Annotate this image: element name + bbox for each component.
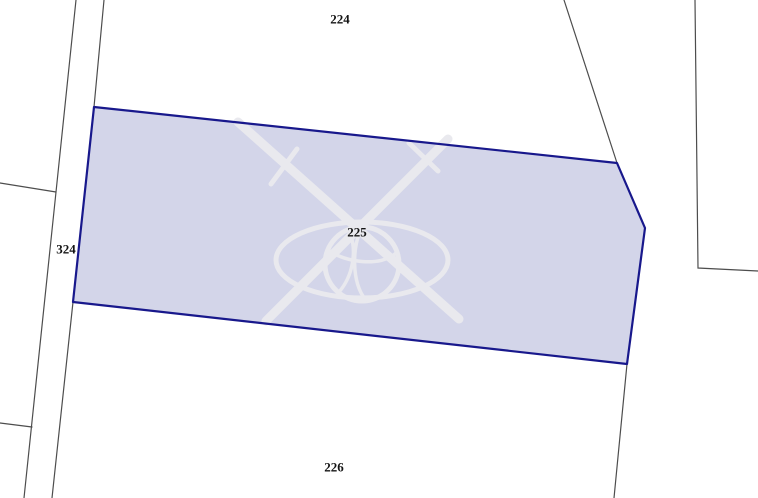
parcel-label-226: 226 [324, 460, 344, 475]
cadastral-map-viewer: 224324225226 [0, 0, 758, 498]
parcel-label-324: 324 [56, 242, 76, 257]
parcel-label-224: 224 [330, 12, 350, 27]
map-canvas[interactable]: 224324225226 [0, 0, 758, 498]
parcel-label-225: 225 [347, 225, 367, 240]
